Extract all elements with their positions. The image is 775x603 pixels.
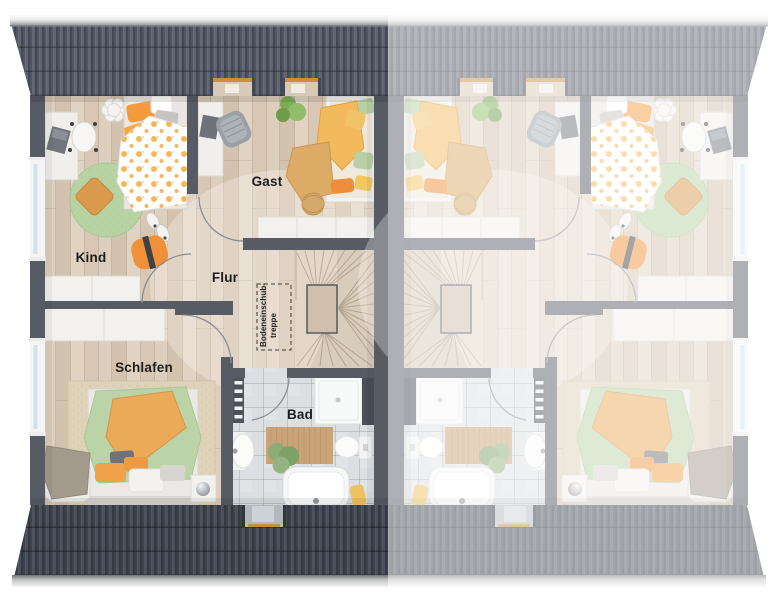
white-pillow xyxy=(129,469,164,492)
toilet xyxy=(335,436,372,459)
label-bad: Bad xyxy=(287,407,313,422)
label-flur: Flur xyxy=(212,270,239,285)
wall-exterior-left xyxy=(30,95,45,505)
gray-pillow xyxy=(160,465,185,481)
label-kind: Kind xyxy=(76,250,107,265)
orange-pillow xyxy=(330,178,354,194)
wall-bad-top xyxy=(287,368,376,378)
mirror-fade-overlay xyxy=(388,0,775,603)
floorplan-svg: Kind Gast Flur Schlafen Bad Bodeneinschu… xyxy=(0,0,775,603)
label-attic-stairs-line1: Bodeneinschub- xyxy=(259,283,268,347)
sink-faucet xyxy=(233,449,238,454)
window-glass xyxy=(34,345,38,429)
stairwell-void xyxy=(307,285,337,333)
roof-bottom-surface xyxy=(12,505,390,586)
wall-kind-gast xyxy=(187,95,198,194)
toilet-bowl xyxy=(335,437,359,458)
schlafen-room xyxy=(42,381,216,505)
sphere-lamp xyxy=(196,482,210,496)
wall-bad-left xyxy=(221,357,233,505)
window-sill xyxy=(29,432,46,436)
window-glass xyxy=(34,164,38,254)
label-schlafen: Schlafen xyxy=(115,360,173,375)
woven-basket xyxy=(302,193,324,215)
orange-pillow xyxy=(95,463,126,482)
dormer-window-1 xyxy=(210,78,255,96)
roof-eave-cap xyxy=(12,575,390,587)
unit-left xyxy=(10,15,420,587)
wall-flur-schlafen xyxy=(175,301,233,315)
window-sill xyxy=(29,257,46,261)
dormer-window-2 xyxy=(282,78,321,96)
ridge-line xyxy=(10,25,390,27)
gast-sideboard xyxy=(258,217,374,240)
roof-top xyxy=(10,15,390,96)
wall-stub xyxy=(233,368,245,378)
gast-desk xyxy=(198,102,223,176)
roof-ridge-cap xyxy=(10,15,390,26)
label-attic-stairs-line2: treppe xyxy=(269,313,278,338)
roof-chimney-notch xyxy=(242,505,286,527)
label-gast: Gast xyxy=(252,174,283,189)
floorplan-canvas: Kind Gast Flur Schlafen Bad Bodeneinschu… xyxy=(0,0,775,603)
shower-drain xyxy=(336,398,341,403)
kind-bed xyxy=(117,96,190,212)
roof-top-surface xyxy=(10,20,390,96)
roof-bottom xyxy=(12,505,390,587)
